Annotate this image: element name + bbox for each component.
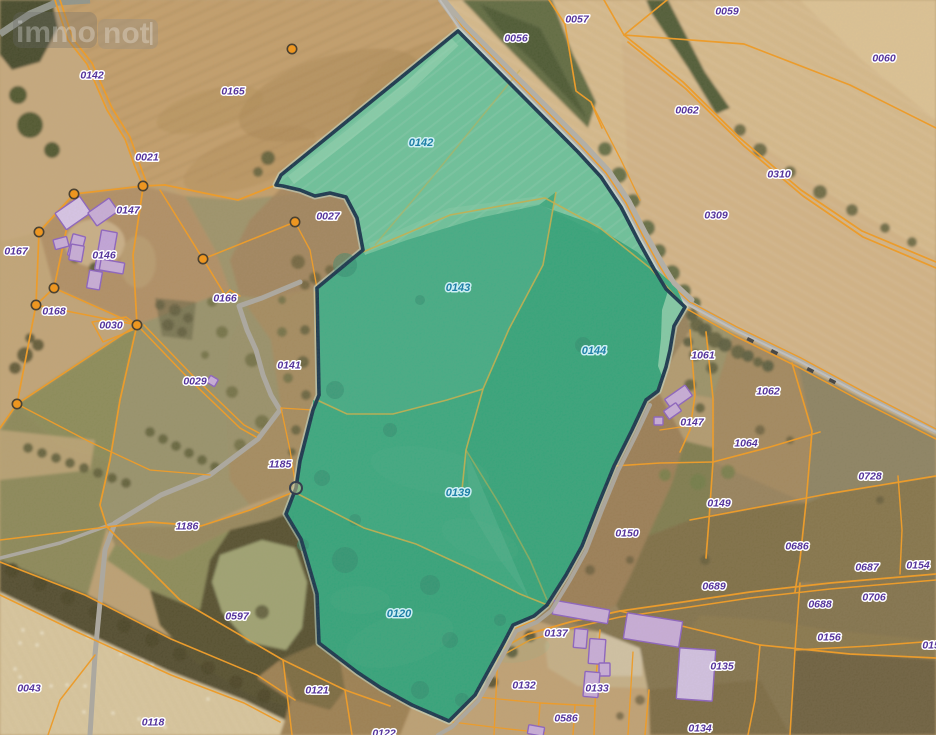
svg-text:0133: 0133 bbox=[585, 683, 609, 695]
svg-text:0135: 0135 bbox=[710, 661, 734, 673]
svg-text:0132: 0132 bbox=[512, 680, 536, 692]
svg-text:0062: 0062 bbox=[675, 105, 699, 117]
svg-text:0122: 0122 bbox=[372, 728, 396, 735]
svg-text:0057: 0057 bbox=[565, 14, 590, 26]
svg-text:0121: 0121 bbox=[305, 685, 329, 697]
svg-text:0118: 0118 bbox=[142, 717, 165, 729]
svg-text:0706: 0706 bbox=[862, 592, 886, 604]
svg-text:0686: 0686 bbox=[785, 541, 809, 553]
svg-text:0137: 0137 bbox=[544, 628, 569, 640]
svg-text:0030: 0030 bbox=[99, 320, 123, 332]
svg-text:0142: 0142 bbox=[409, 137, 433, 149]
svg-text:0139: 0139 bbox=[446, 487, 471, 499]
svg-text:not: not bbox=[103, 17, 150, 50]
svg-text:0166: 0166 bbox=[213, 293, 237, 305]
svg-text:0167: 0167 bbox=[4, 246, 29, 258]
svg-text:0146: 0146 bbox=[92, 250, 116, 262]
svg-text:1064: 1064 bbox=[734, 438, 758, 450]
svg-text:0147: 0147 bbox=[680, 417, 705, 429]
svg-text:0597: 0597 bbox=[225, 611, 250, 623]
svg-text:0156: 0156 bbox=[817, 632, 841, 644]
svg-text:0150: 0150 bbox=[615, 528, 639, 540]
svg-text:immo: immo bbox=[16, 16, 96, 49]
svg-text:0309: 0309 bbox=[704, 210, 728, 222]
svg-text:0688: 0688 bbox=[808, 599, 832, 611]
svg-text:0728: 0728 bbox=[858, 471, 882, 483]
svg-text:0043: 0043 bbox=[17, 683, 41, 695]
svg-text:0310: 0310 bbox=[767, 169, 791, 181]
svg-text:0168: 0168 bbox=[42, 306, 66, 318]
svg-text:0143: 0143 bbox=[446, 282, 470, 294]
svg-text:0021: 0021 bbox=[135, 152, 159, 164]
svg-text:1061: 1061 bbox=[691, 350, 715, 362]
svg-text:0027: 0027 bbox=[316, 211, 341, 223]
svg-text:1062: 1062 bbox=[756, 386, 780, 398]
svg-text:0120: 0120 bbox=[387, 608, 412, 620]
svg-text:0142: 0142 bbox=[80, 70, 104, 82]
svg-text:0149: 0149 bbox=[707, 498, 731, 510]
svg-text:0586: 0586 bbox=[554, 713, 578, 725]
svg-text:0154: 0154 bbox=[906, 560, 930, 572]
svg-text:0029: 0029 bbox=[183, 376, 207, 388]
svg-text:0059: 0059 bbox=[715, 6, 739, 18]
svg-text:0687: 0687 bbox=[855, 562, 880, 574]
svg-text:0147: 0147 bbox=[116, 205, 141, 217]
svg-text:0144: 0144 bbox=[582, 345, 606, 357]
svg-text:0157: 0157 bbox=[922, 640, 936, 652]
svg-text:1186: 1186 bbox=[176, 521, 199, 533]
svg-text:0056: 0056 bbox=[504, 33, 528, 45]
svg-text:0165: 0165 bbox=[221, 86, 245, 98]
svg-text:0689: 0689 bbox=[702, 581, 726, 593]
svg-text:1185: 1185 bbox=[269, 459, 292, 471]
svg-text:0060: 0060 bbox=[872, 53, 896, 65]
svg-text:0141: 0141 bbox=[277, 360, 301, 372]
svg-text:0134: 0134 bbox=[688, 723, 712, 735]
